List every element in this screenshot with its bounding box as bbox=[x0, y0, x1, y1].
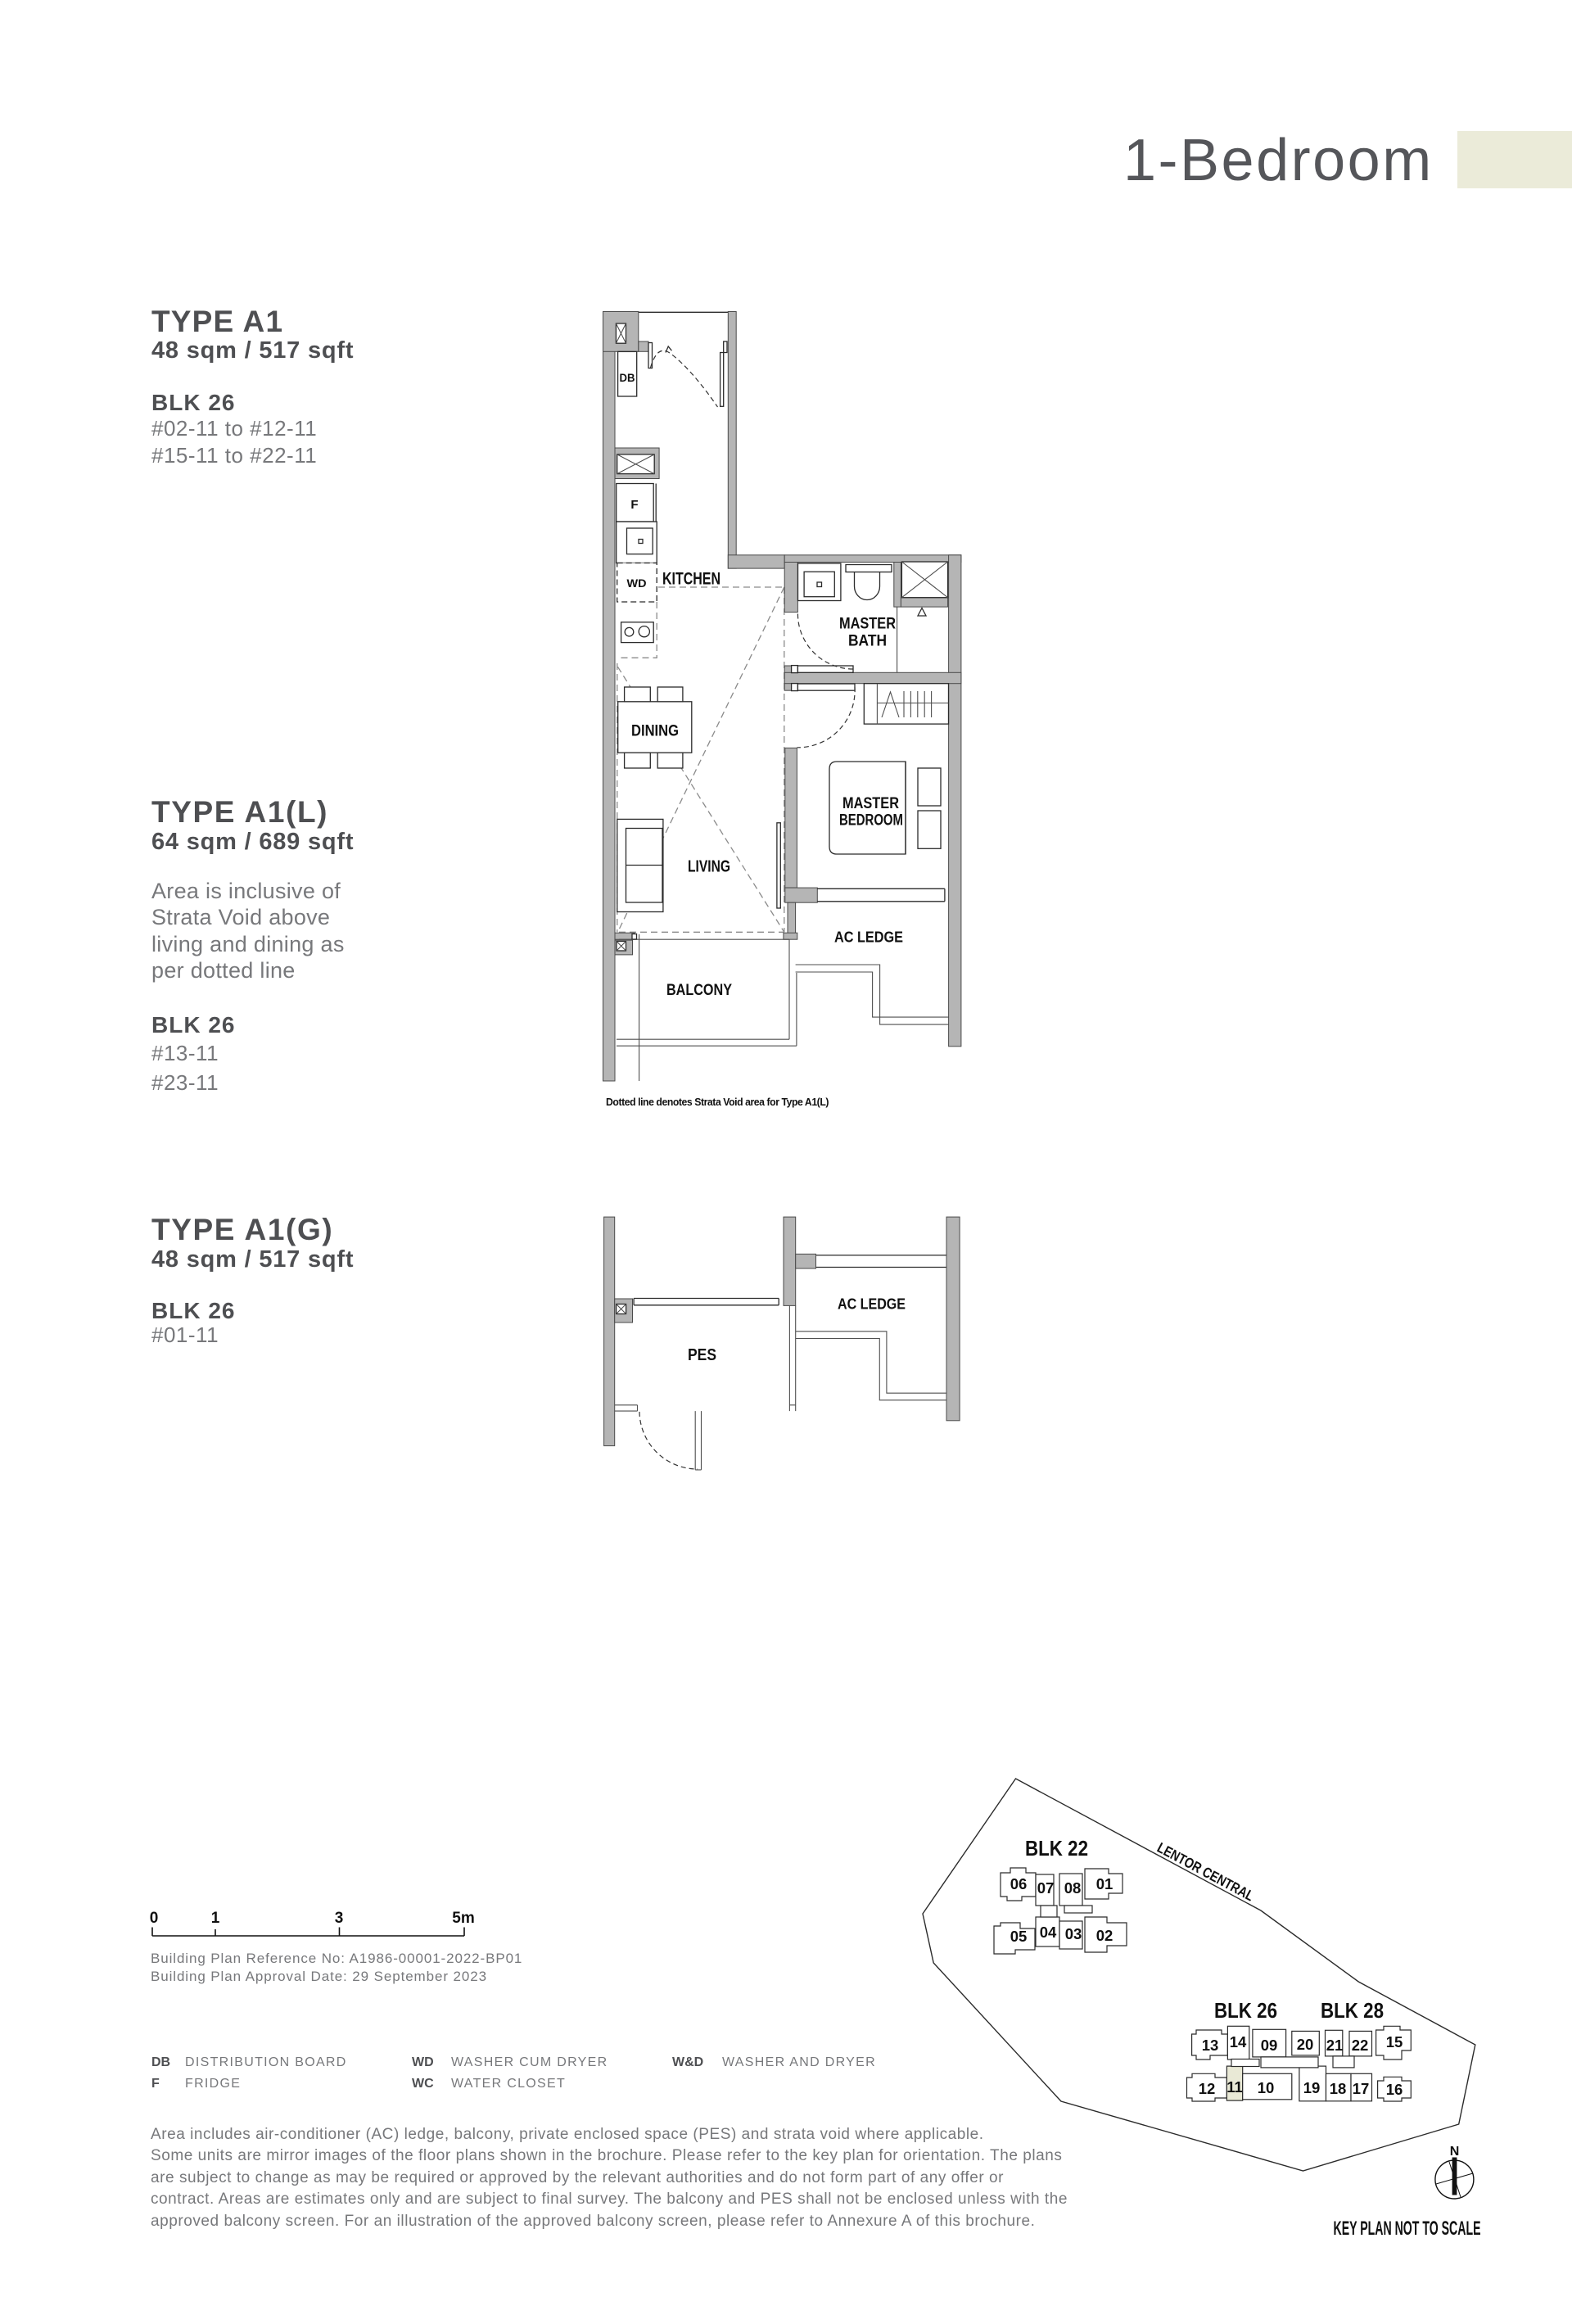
svg-text:1: 1 bbox=[211, 1910, 220, 1927]
svg-text:MASTER: MASTER bbox=[839, 615, 896, 633]
svg-text:18: 18 bbox=[1330, 2080, 1347, 2097]
svg-text:21: 21 bbox=[1326, 2037, 1344, 2054]
svg-text:20: 20 bbox=[1297, 2036, 1314, 2053]
svg-text:BEDROOM: BEDROOM bbox=[839, 812, 903, 830]
svg-text:06: 06 bbox=[1010, 1875, 1028, 1892]
svg-text:01: 01 bbox=[1096, 1875, 1113, 1892]
svg-text:15: 15 bbox=[1386, 2033, 1403, 2050]
svg-text:DB: DB bbox=[620, 372, 635, 384]
svg-text:BALCONY: BALCONY bbox=[666, 981, 732, 999]
svg-text:22: 22 bbox=[1352, 2037, 1369, 2054]
svg-text:AC LEDGE: AC LEDGE bbox=[834, 929, 903, 946]
svg-text:13: 13 bbox=[1202, 2037, 1219, 2054]
svg-text:10: 10 bbox=[1258, 2079, 1275, 2096]
svg-text:11: 11 bbox=[1226, 2078, 1243, 2096]
svg-text:LIVING: LIVING bbox=[688, 857, 730, 876]
svg-text:MASTER: MASTER bbox=[842, 794, 899, 812]
svg-text:17: 17 bbox=[1353, 2080, 1370, 2097]
svg-text:N: N bbox=[1450, 2145, 1460, 2159]
svg-text:PES: PES bbox=[688, 1346, 716, 1364]
svg-text:3: 3 bbox=[335, 1910, 344, 1927]
svg-text:F: F bbox=[630, 498, 638, 512]
svg-text:12: 12 bbox=[1199, 2080, 1216, 2097]
svg-text:BLK 22: BLK 22 bbox=[1025, 1836, 1088, 1861]
svg-text:LENTOR CENTRAL: LENTOR CENTRAL bbox=[1154, 1839, 1257, 1905]
svg-text:KEY PLAN NOT TO SCALE: KEY PLAN NOT TO SCALE bbox=[1334, 2218, 1481, 2240]
svg-text:DINING: DINING bbox=[631, 723, 679, 740]
svg-text:WD: WD bbox=[627, 577, 647, 590]
svg-text:0: 0 bbox=[150, 1910, 159, 1927]
svg-text:04: 04 bbox=[1040, 1924, 1057, 1941]
svg-text:BLK 26: BLK 26 bbox=[1214, 1998, 1277, 2023]
svg-text:5m: 5m bbox=[452, 1910, 474, 1927]
svg-text:02: 02 bbox=[1096, 1927, 1113, 1944]
svg-text:19: 19 bbox=[1303, 2079, 1321, 2096]
svg-text:08: 08 bbox=[1064, 1879, 1082, 1897]
svg-text:AC LEDGE: AC LEDGE bbox=[838, 1295, 906, 1313]
svg-text:14: 14 bbox=[1230, 2033, 1247, 2050]
svg-text:16: 16 bbox=[1386, 2081, 1403, 2098]
svg-text:09: 09 bbox=[1261, 2037, 1278, 2054]
svg-text:05: 05 bbox=[1010, 1928, 1028, 1945]
svg-text:BATH: BATH bbox=[848, 632, 887, 650]
svg-text:KITCHEN: KITCHEN bbox=[662, 570, 720, 589]
svg-text:BLK 28: BLK 28 bbox=[1321, 1998, 1384, 2023]
svg-text:03: 03 bbox=[1065, 1925, 1082, 1942]
svg-text:07: 07 bbox=[1037, 1879, 1055, 1897]
